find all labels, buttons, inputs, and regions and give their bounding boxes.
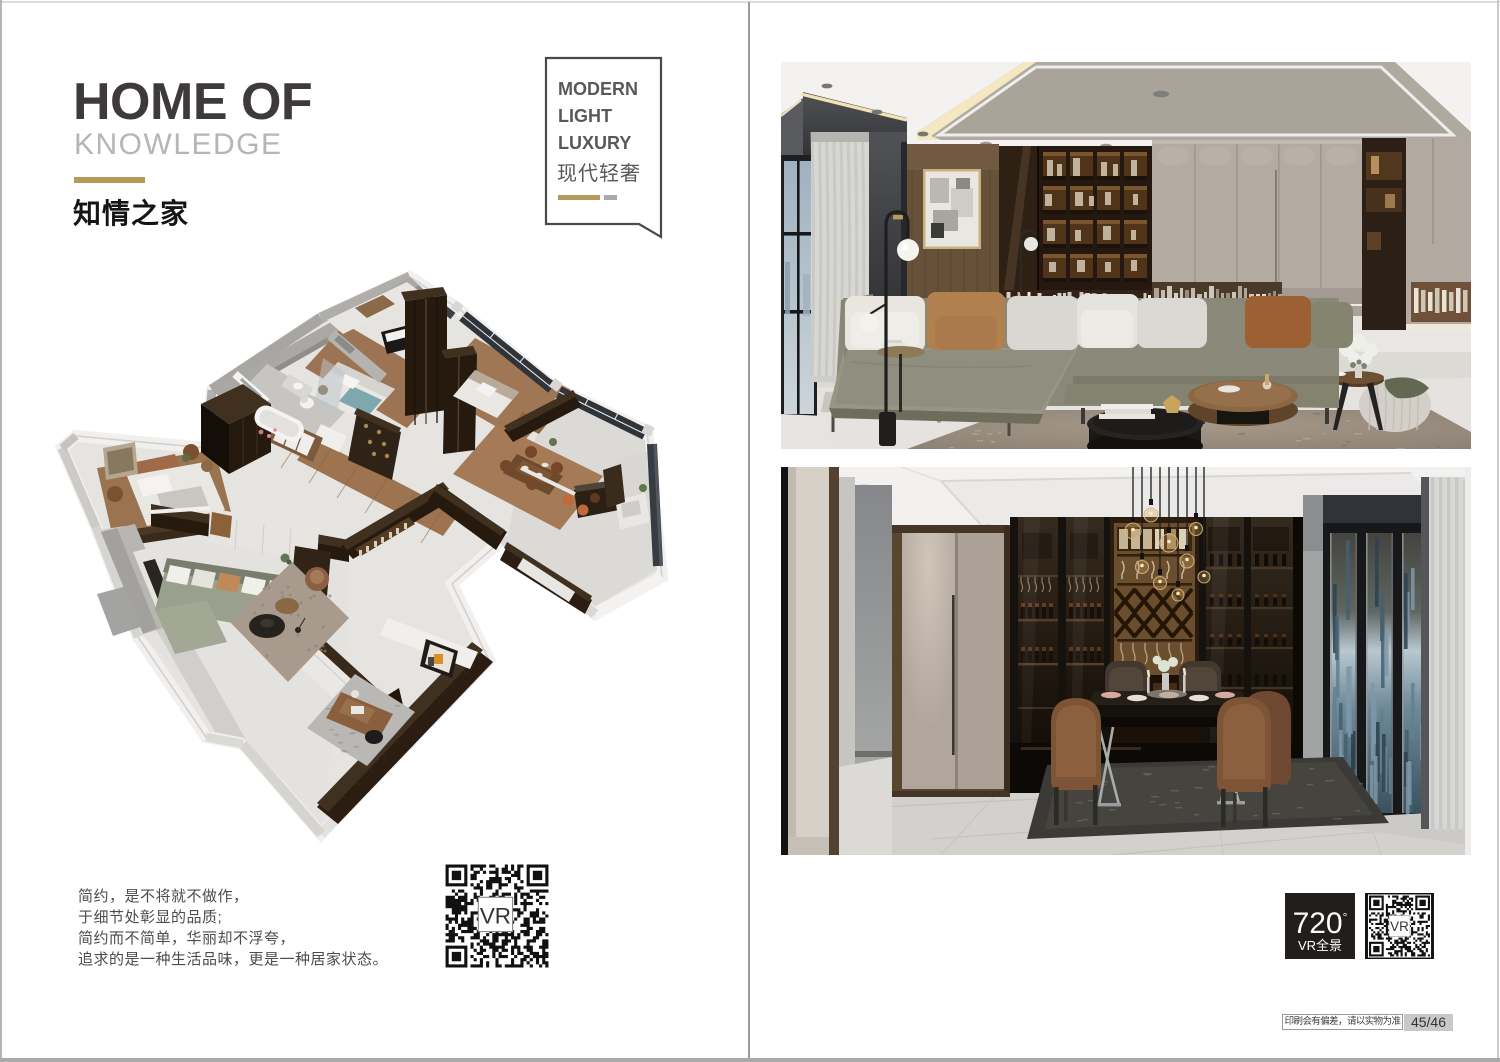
svg-text:VR: VR xyxy=(480,903,511,928)
svg-text:VR: VR xyxy=(1390,919,1409,934)
